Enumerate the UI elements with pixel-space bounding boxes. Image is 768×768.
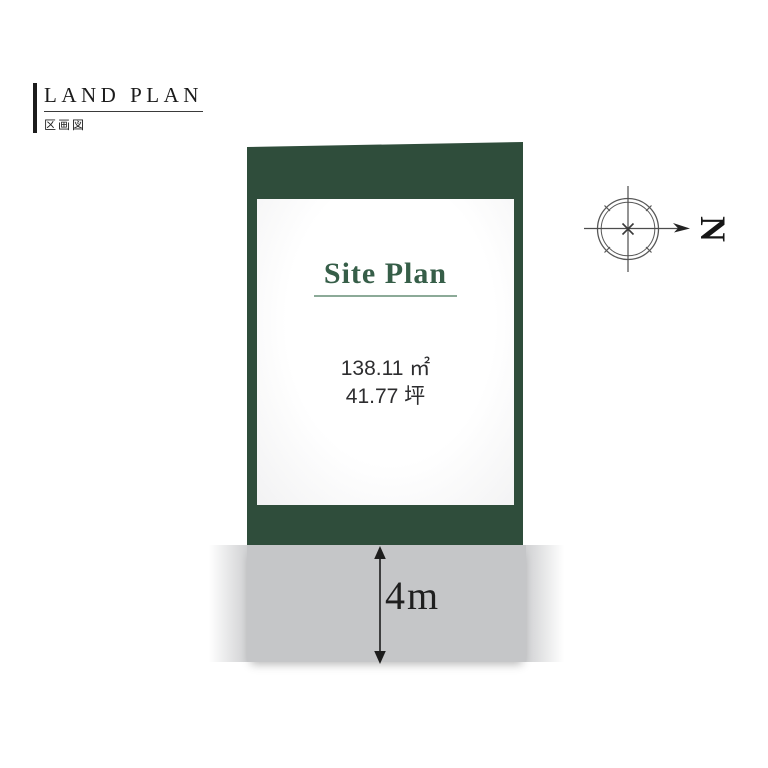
- site-plan-title: Site Plan: [314, 259, 457, 297]
- road-width-label: 4m: [385, 574, 440, 618]
- north-label: N: [693, 216, 733, 242]
- area-tsubo: 41.77 坪: [257, 383, 514, 411]
- road-fade-left: [209, 545, 247, 662]
- title-accent-bar: [33, 83, 37, 133]
- area-sqm: 138.11 ㎡: [257, 355, 514, 383]
- title-block: LAND PLAN 区画図: [44, 84, 203, 133]
- plot-area-values: 138.11 ㎡ 41.77 坪: [257, 355, 514, 411]
- land-plan-page: LAND PLAN 区画図 Site Plan 138.11 ㎡ 41.77 坪…: [0, 0, 768, 768]
- site-plot-inner: Site Plan 138.11 ㎡ 41.77 坪: [257, 199, 514, 505]
- compass-icon: N: [575, 176, 745, 284]
- page-title: LAND PLAN: [44, 84, 203, 112]
- page-subtitle: 区画図: [44, 116, 203, 133]
- road-fade-right: [526, 545, 564, 662]
- site-plot-shape: Site Plan 138.11 ㎡ 41.77 坪: [247, 142, 523, 545]
